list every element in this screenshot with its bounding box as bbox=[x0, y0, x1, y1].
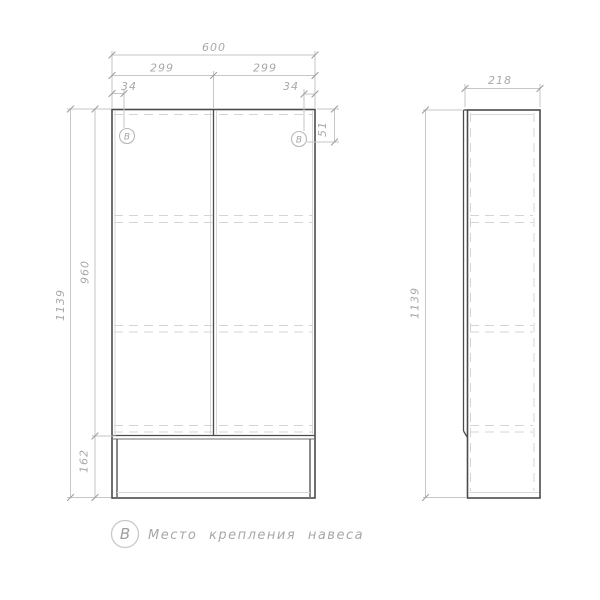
front-view: В В bbox=[112, 110, 315, 499]
dim-right-mount-offset: 34 bbox=[283, 80, 299, 93]
dim-depth: 218 bbox=[488, 74, 512, 87]
dim-left-mount-offset: 34 bbox=[121, 80, 137, 93]
side-extension-lines bbox=[423, 84, 540, 498]
legend-caption: Место крепления навеса bbox=[148, 528, 364, 543]
side-dimension-ticks bbox=[422, 85, 543, 501]
side-cabinet-outline bbox=[464, 110, 541, 498]
dim-front-total-height: 1139 bbox=[54, 289, 67, 321]
dim-door-height: 960 bbox=[79, 260, 92, 284]
dim-niche-height: 162 bbox=[78, 449, 91, 473]
legend: В Место крепления навеса bbox=[112, 521, 365, 548]
dim-right-door-width: 299 bbox=[253, 62, 277, 75]
front-cabinet-outline bbox=[112, 110, 315, 499]
side-dimensions: 218 1139 bbox=[409, 74, 544, 501]
side-dimension-lines bbox=[426, 89, 541, 498]
side-view bbox=[464, 110, 541, 498]
mount-symbol-left: В bbox=[124, 133, 130, 143]
front-dimension-ticks bbox=[67, 52, 338, 501]
legend-mount-symbol: В bbox=[120, 525, 130, 543]
drawing-page: В В bbox=[0, 0, 600, 600]
front-extension-lines bbox=[67, 51, 339, 498]
dim-left-door-width: 299 bbox=[150, 62, 174, 75]
mount-symbol-right: В bbox=[296, 136, 302, 146]
mount-marker-right: В bbox=[292, 132, 307, 147]
mount-marker-left: В bbox=[120, 129, 135, 144]
dim-total-width: 600 bbox=[202, 41, 226, 54]
cabinet-technical-drawing: В В bbox=[0, 0, 600, 600]
side-hidden-lines bbox=[469, 113, 539, 493]
dim-side-total-height: 1139 bbox=[409, 287, 422, 319]
dim-mount-top-offset: 51 bbox=[316, 121, 329, 137]
front-dimension-lines bbox=[71, 55, 335, 498]
